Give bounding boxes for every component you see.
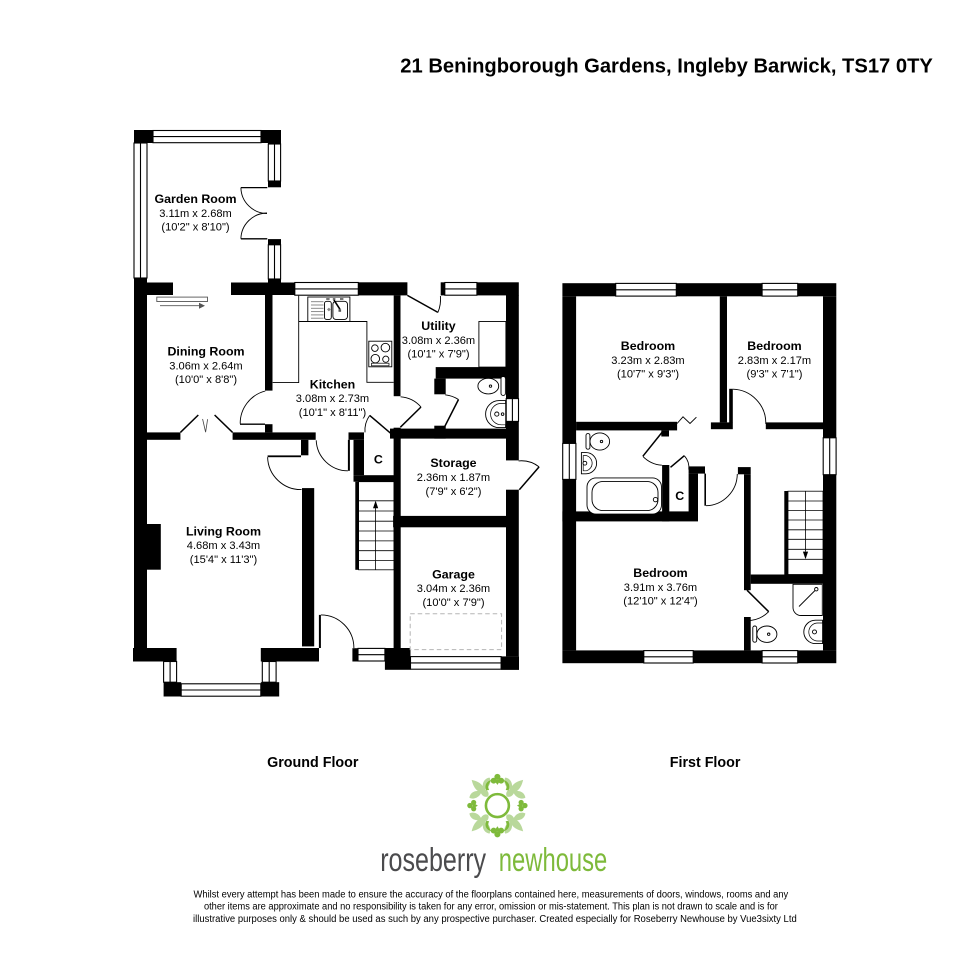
svg-text:3.04m x 2.36m: 3.04m x 2.36m [417, 583, 490, 595]
svg-text:Storage: Storage [430, 456, 476, 470]
svg-text:Utility: Utility [421, 319, 456, 333]
svg-text:21 Beningborough Gardens, Ingl: 21 Beningborough Gardens, Ingleby Barwic… [400, 56, 933, 78]
svg-text:(12'10" x 12'4"): (12'10" x 12'4") [623, 596, 697, 608]
svg-text:Bedroom: Bedroom [621, 339, 675, 353]
svg-text:3.91m x 3.76m: 3.91m x 3.76m [624, 582, 697, 594]
svg-text:(7'9" x 6'2"): (7'9" x 6'2") [426, 486, 482, 498]
svg-text:4.68m x 3.43m: 4.68m x 3.43m [187, 540, 260, 552]
svg-text:Ground Floor: Ground Floor [267, 755, 359, 771]
svg-text:Garden Room: Garden Room [155, 192, 237, 206]
svg-text:Dining Room: Dining Room [167, 345, 244, 359]
svg-text:First Floor: First Floor [670, 755, 741, 771]
svg-text:roseberry: roseberry [380, 841, 486, 878]
svg-text:(10'1" x 8'11"): (10'1" x 8'11") [299, 407, 366, 419]
svg-text:C: C [675, 489, 684, 503]
svg-text:(10'1" x 7'9"): (10'1" x 7'9") [407, 349, 469, 361]
svg-text:(9'3" x 7'1"): (9'3" x 7'1") [747, 369, 803, 381]
svg-text:newhouse: newhouse [499, 841, 608, 878]
svg-text:C: C [374, 452, 383, 466]
svg-text:3.06m x 2.64m: 3.06m x 2.64m [169, 360, 242, 372]
svg-text:(10'0" x 7'9"): (10'0" x 7'9") [422, 597, 484, 609]
svg-text:2.83m x 2.17m: 2.83m x 2.17m [738, 355, 811, 367]
svg-text:Bedroom: Bedroom [747, 339, 801, 353]
svg-text:3.08m x 2.36m: 3.08m x 2.36m [402, 335, 475, 347]
svg-text:3.08m x 2.73m: 3.08m x 2.73m [296, 393, 369, 405]
svg-text:3.11m x 2.68m: 3.11m x 2.68m [159, 208, 232, 220]
svg-text:Garage: Garage [432, 567, 475, 581]
svg-text:(10'7" x 9'3"): (10'7" x 9'3") [617, 369, 679, 381]
svg-text:Kitchen: Kitchen [310, 377, 355, 391]
svg-text:Whilst every attempt has been: Whilst every attempt has been made to en… [194, 889, 789, 900]
svg-text:illustrative purposes only & s: illustrative purposes only & should be u… [193, 914, 797, 925]
svg-text:(10'2" x 8'10"): (10'2" x 8'10") [161, 222, 229, 234]
svg-text:Living Room: Living Room [186, 524, 261, 538]
svg-text:other items are approximate an: other items are approximate and no respo… [204, 902, 779, 913]
svg-text:2.36m x 1.87m: 2.36m x 1.87m [417, 472, 490, 484]
svg-text:(10'0" x 8'8"): (10'0" x 8'8") [175, 374, 237, 386]
svg-text:Bedroom: Bedroom [633, 566, 687, 580]
svg-text:(15'4" x 11'3"): (15'4" x 11'3") [190, 554, 257, 566]
svg-text:3.23m x 2.83m: 3.23m x 2.83m [611, 355, 684, 367]
